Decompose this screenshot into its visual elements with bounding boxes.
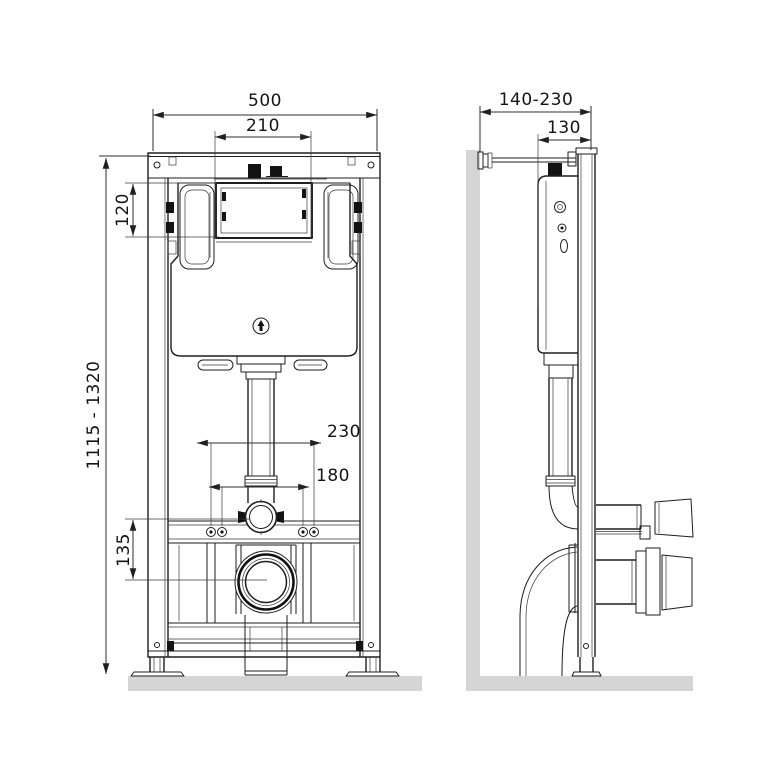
floor-front: [128, 676, 422, 691]
flush-plate-opening: [216, 183, 312, 238]
frame-rail-side: [572, 148, 601, 676]
flush-pipe-front: [237, 356, 285, 535]
dim-label-frame-depth: 130: [547, 118, 581, 138]
dim-label-bolt-spacing-inner: 180: [316, 466, 350, 486]
dim-label-opening-width: 210: [246, 116, 280, 136]
wall-side: [466, 150, 480, 677]
flush-cone-adapter: [655, 499, 693, 537]
drain-channel: [245, 615, 287, 675]
dim-installation-height: 1115 - 1320: [84, 156, 150, 674]
frame-hole-bottom-right: [369, 643, 374, 648]
side-view: [478, 148, 693, 676]
dim-label-bolt-spacing-outer: 230: [327, 422, 361, 442]
flush-pipe-side: [546, 378, 693, 539]
dim-label-opening-height: 120: [113, 193, 133, 227]
installation-drawing: 500 210 120 1115 - 1320 135: [0, 0, 780, 780]
flush-valve-icon: [253, 318, 269, 334]
cistern-side: [538, 163, 578, 378]
foot-right: [346, 657, 399, 676]
drain-cone-adapter: [662, 555, 692, 610]
foot-left: [131, 657, 184, 676]
floor-side: [466, 676, 693, 691]
dim-label-outlet-offset: 135: [114, 533, 134, 567]
dim-label-installation-height: 1115 - 1320: [84, 361, 104, 470]
dim-label-wall-distance: 140-230: [499, 90, 574, 110]
surfaces: [128, 150, 693, 691]
cistern-front: [166, 164, 362, 370]
technical-drawing: 500 210 120 1115 - 1320 135: [0, 0, 780, 780]
drain-connection-side: [569, 543, 692, 615]
front-view: [131, 153, 399, 676]
frame-hole-top-right: [368, 162, 374, 168]
drain-elbow-side: [520, 547, 577, 676]
flush-bend-connector: [238, 499, 284, 535]
inlet-knob: [248, 164, 261, 178]
vent-knob: [270, 166, 282, 176]
drain-outlet-front: [235, 545, 297, 614]
dim-label-frame-width: 500: [248, 91, 282, 111]
frame-hole-bottom-left: [155, 643, 160, 648]
frame-hole-top-left: [154, 162, 160, 168]
